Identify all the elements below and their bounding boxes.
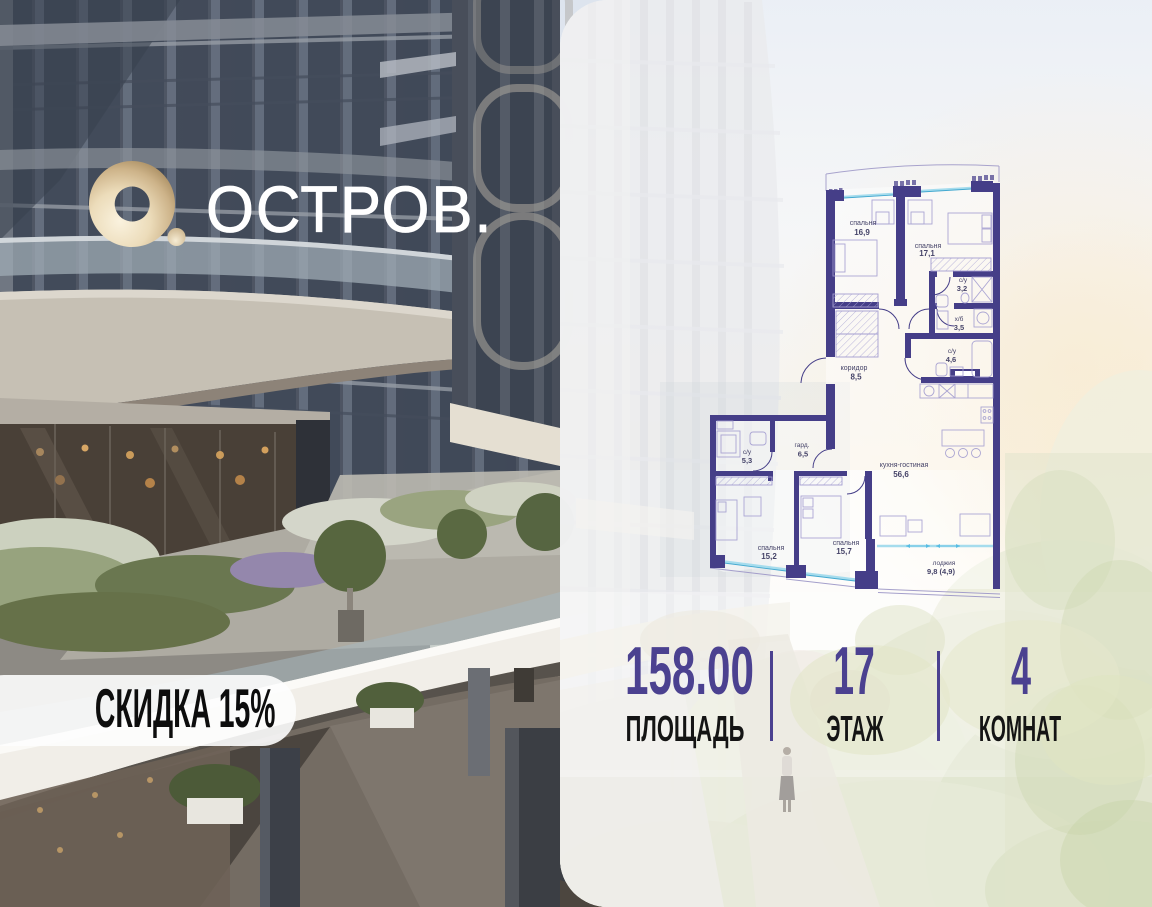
svg-text:х/б: х/б: [955, 315, 964, 323]
svg-text:15,7: 15,7: [836, 547, 852, 556]
svg-text:16,9: 16,9: [854, 228, 870, 237]
svg-text:коридор: коридор: [841, 365, 868, 372]
svg-text:6,5: 6,5: [798, 450, 808, 459]
svg-text:спальня: спальня: [758, 545, 785, 552]
svg-text:спальня: спальня: [833, 540, 860, 547]
svg-text:3,2: 3,2: [957, 284, 967, 293]
svg-text:17,1: 17,1: [919, 249, 935, 258]
svg-text:5,3: 5,3: [742, 456, 752, 465]
svg-text:8,5: 8,5: [850, 373, 862, 382]
svg-text:с/у: с/у: [948, 348, 957, 355]
svg-text:с/у: с/у: [743, 449, 752, 456]
svg-text:9,8 (4,9): 9,8 (4,9): [927, 567, 955, 576]
svg-text:56,6: 56,6: [893, 470, 909, 479]
svg-text:с/у: с/у: [959, 277, 968, 284]
svg-text:гард.: гард.: [795, 442, 810, 449]
svg-text:кухня-гостиная: кухня-гостиная: [880, 462, 929, 469]
svg-text:3,5: 3,5: [954, 323, 964, 332]
svg-text:спальня: спальня: [850, 220, 877, 227]
svg-text:лоджия: лоджия: [933, 560, 956, 567]
svg-text:4,6: 4,6: [946, 355, 956, 364]
svg-text:15,2: 15,2: [761, 552, 777, 561]
